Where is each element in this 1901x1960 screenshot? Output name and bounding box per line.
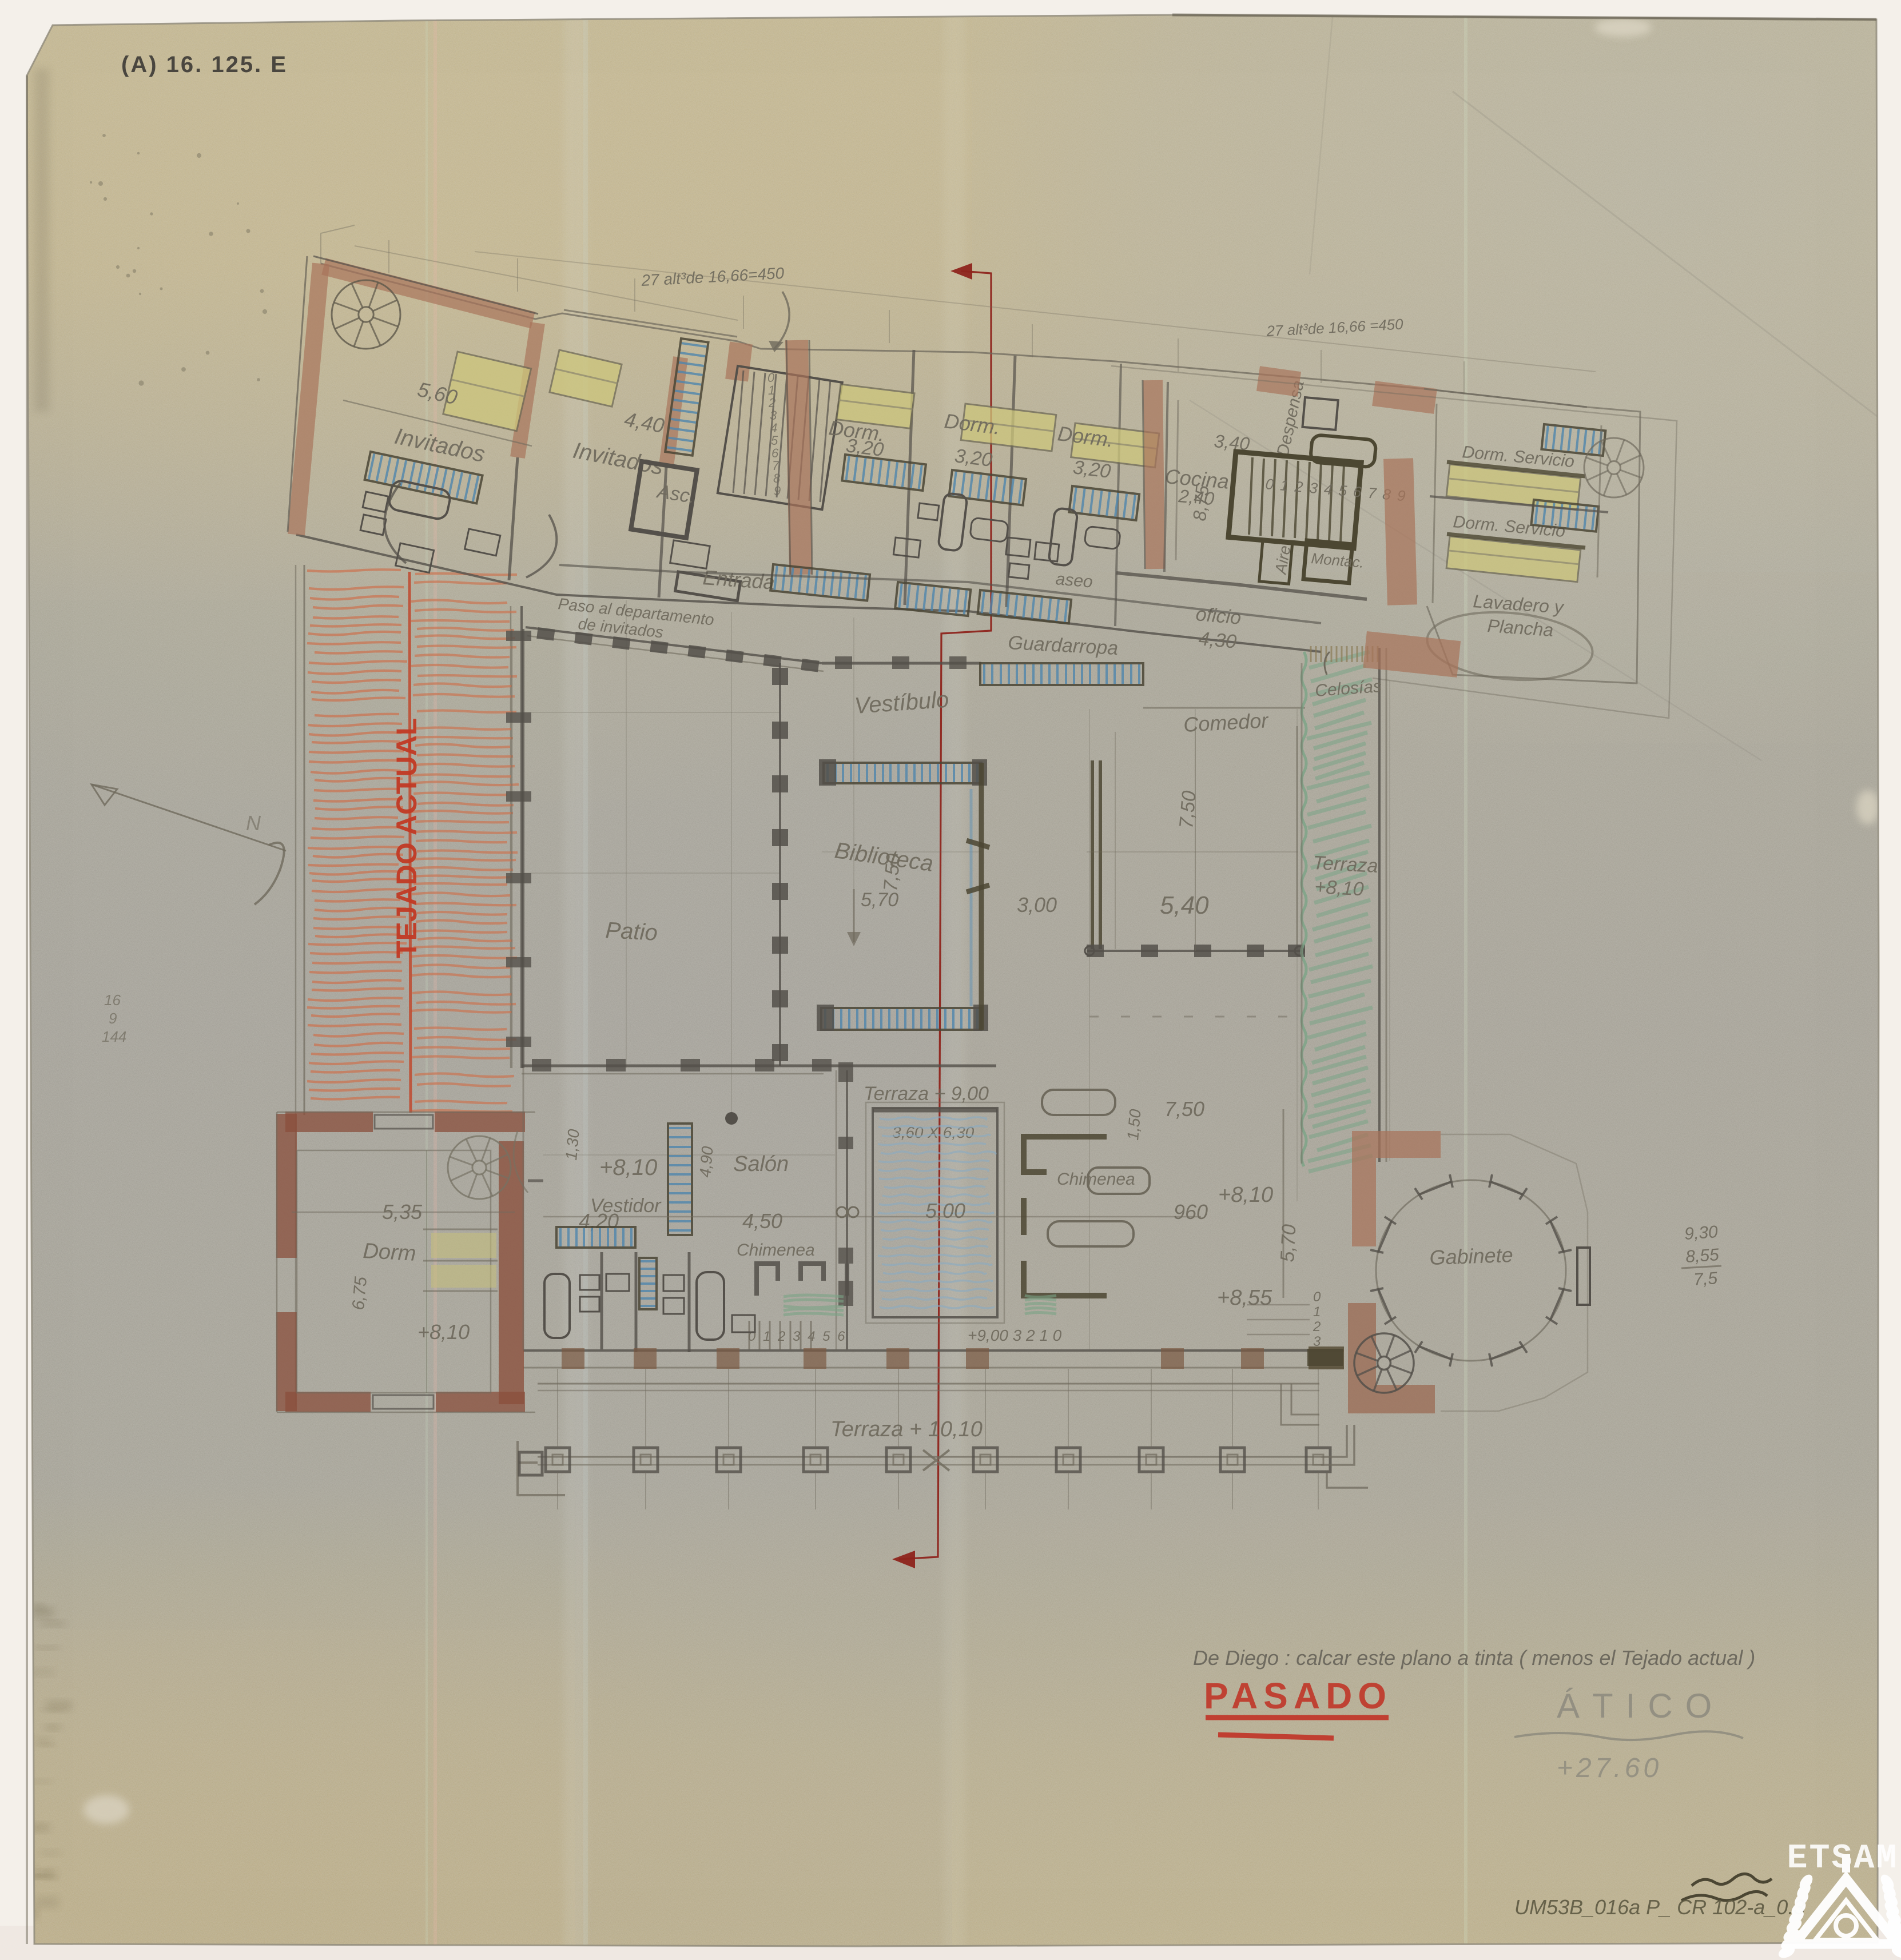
svg-text:9,30: 9,30 <box>1684 1222 1719 1244</box>
svg-text:Patio: Patio <box>605 918 658 946</box>
svg-text:8,55: 8,55 <box>1685 1245 1720 1266</box>
svg-text:aseo: aseo <box>1055 569 1093 592</box>
svg-text:+8,10: +8,10 <box>1218 1183 1273 1207</box>
svg-text:960: 960 <box>1174 1200 1208 1224</box>
svg-text:9: 9 <box>109 1010 117 1027</box>
svg-text:Entrada: Entrada <box>702 565 775 594</box>
svg-text:Terraza: Terraza <box>1313 852 1379 877</box>
svg-text:1,30: 1,30 <box>562 1128 583 1161</box>
svg-text:5,70: 5,70 <box>1276 1224 1300 1262</box>
svg-text:2: 2 <box>1313 1319 1321 1334</box>
svg-text:5,40: 5,40 <box>1160 891 1209 919</box>
svg-text:Chimenea: Chimenea <box>737 1241 815 1260</box>
svg-text:7,5: 7,5 <box>1693 1269 1718 1289</box>
svg-text:0 1 2 3 4 5 6: 0 1 2 3 4 5 6 <box>748 1329 846 1344</box>
svg-text:4,50: 4,50 <box>742 1209 782 1233</box>
svg-text:5,70: 5,70 <box>861 889 898 911</box>
svg-text:6,75: 6,75 <box>349 1276 371 1310</box>
svg-text:+8,10: +8,10 <box>417 1320 470 1344</box>
svg-text:+9,00 3 2 1 0: +9,00 3 2 1 0 <box>968 1326 1062 1344</box>
svg-text:+27.60: +27.60 <box>1557 1753 1662 1783</box>
svg-text:Dorm: Dorm <box>363 1239 417 1266</box>
svg-text:7,50: 7,50 <box>1164 1097 1204 1121</box>
svg-text:+8,55: +8,55 <box>1217 1286 1272 1310</box>
svg-text:7,50: 7,50 <box>880 852 905 892</box>
svg-text:N: N <box>246 811 261 835</box>
svg-text:+8,10: +8,10 <box>599 1155 657 1180</box>
svg-text:3,20: 3,20 <box>1072 456 1112 483</box>
svg-text:Terraza + 10,10: Terraza + 10,10 <box>830 1417 983 1441</box>
svg-text:+8,10: +8,10 <box>1314 876 1365 900</box>
svg-text:4,30: 4,30 <box>1198 628 1237 653</box>
svg-text:9: 9 <box>774 484 781 498</box>
svg-text:8,75: 8,75 <box>1189 484 1212 521</box>
svg-text:Salón: Salón <box>733 1152 789 1176</box>
svg-text:1,50: 1,50 <box>1124 1108 1144 1141</box>
svg-text:De Diego : calcar este pla: De Diego : calcar este plano a tinta ( m… <box>1193 1646 1755 1670</box>
svg-text:0: 0 <box>1313 1289 1321 1305</box>
svg-text:Chimenea: Chimenea <box>1057 1170 1135 1189</box>
svg-text:16: 16 <box>104 991 121 1009</box>
svg-text:TEJADO ACTUAL: TEJADO ACTUAL <box>391 718 423 958</box>
svg-text:144: 144 <box>102 1028 126 1045</box>
svg-text:UM53B_016a P_ CR 102-a_0.3: UM53B_016a P_ CR 102-a_0.3 <box>1514 1895 1805 1919</box>
svg-text:1: 1 <box>1313 1304 1321 1320</box>
svg-text:5,00: 5,00 <box>925 1199 965 1222</box>
svg-text:PASADO: PASADO <box>1204 1675 1392 1716</box>
svg-text:3,00: 3,00 <box>1017 893 1057 917</box>
svg-text:oficio: oficio <box>1195 603 1242 629</box>
svg-text:Comedor: Comedor <box>1183 708 1270 736</box>
svg-text:Terraza + 9,00: Terraza + 9,00 <box>864 1083 989 1105</box>
svg-text:ÁTICO: ÁTICO <box>1557 1687 1724 1725</box>
svg-text:7,50: 7,50 <box>1175 790 1200 829</box>
svg-text:3,20: 3,20 <box>953 445 993 471</box>
svg-text:(A) 16. 125. E: (A) 16. 125. E <box>121 52 288 77</box>
svg-text:4,90: 4,90 <box>696 1145 717 1178</box>
svg-text:Gabinete: Gabinete <box>1429 1243 1513 1269</box>
